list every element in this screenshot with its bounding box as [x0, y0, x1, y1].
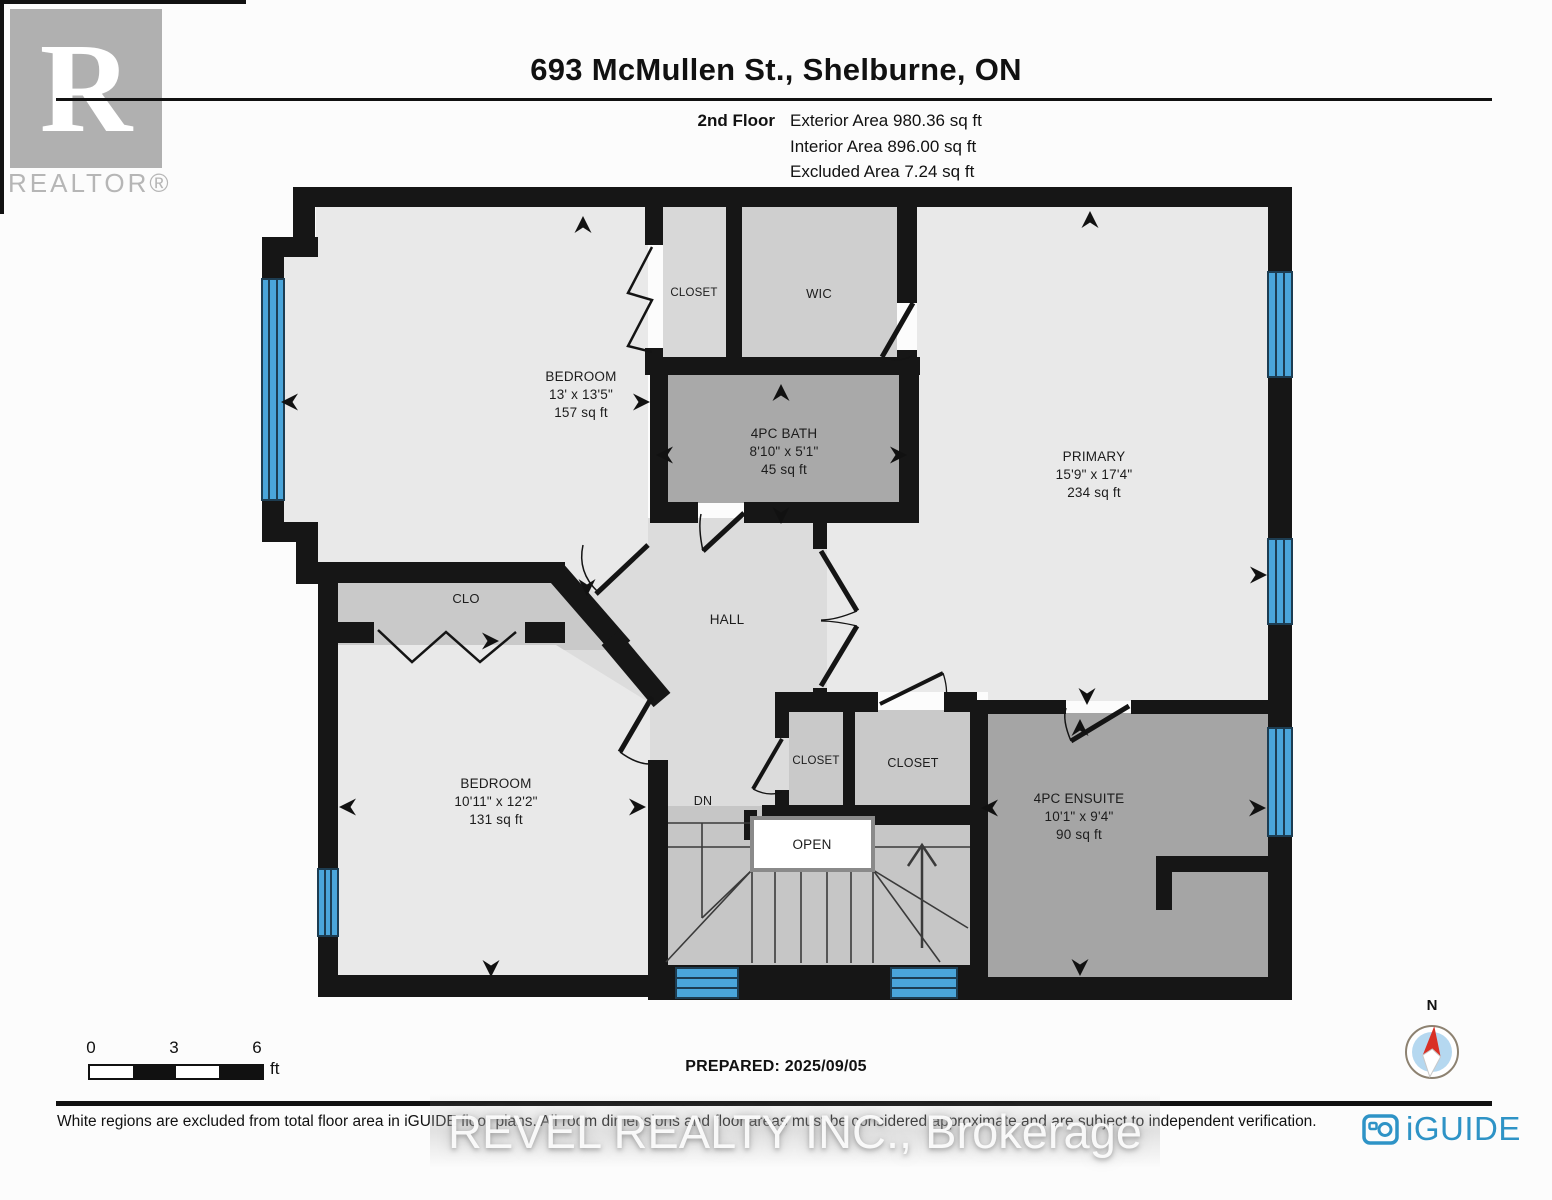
room-label-primary: PRIMARY15'9" x 17'4"234 sq ft [1056, 448, 1133, 501]
iguide-camera-icon [1362, 1112, 1400, 1146]
room-label-closet-top: CLOSET [670, 286, 717, 301]
room-label-bedroom-1: BEDROOM13' x 13'5"157 sq ft [545, 368, 616, 421]
stairs-down-label: DN [694, 793, 712, 810]
window [262, 279, 284, 500]
window [676, 968, 738, 998]
brokerage-watermark: REVEL REALTY INC., Brokerage [430, 1094, 1160, 1168]
room-label-closet-b: CLOSET [887, 755, 938, 772]
room-label-closet-a: CLOSET [792, 754, 839, 769]
floor-plan [0, 0, 1552, 1200]
room-label-wic: WIC [806, 285, 832, 302]
room-label-bath: 4PC BATH8'10" x 5'1"45 sq ft [750, 425, 819, 478]
room-label-ensuite: 4PC ENSUITE10'1" x 9'4"90 sq ft [1034, 790, 1125, 843]
window [1268, 539, 1292, 624]
scale-bar [88, 1064, 264, 1080]
prepared-date: PREPARED: 2025/09/05 [685, 1058, 867, 1076]
window [318, 869, 338, 936]
room-label-hall: HALL [710, 611, 745, 629]
room-label-bedroom-2: BEDROOM10'11" x 12'2"131 sq ft [454, 775, 537, 828]
compass-north-label: N [1427, 997, 1438, 1014]
scale-unit: ft [270, 1059, 279, 1079]
room-label-clo: CLO [452, 590, 479, 607]
compass-icon: N [1398, 994, 1468, 1086]
stairs-open-label: OPEN [792, 836, 831, 854]
window [1268, 272, 1292, 377]
iguide-brand-text: iGUIDE [1406, 1110, 1521, 1148]
window [1268, 728, 1292, 836]
window [891, 968, 957, 998]
iguide-logo: iGUIDE [1362, 1110, 1521, 1148]
floorplan-page: R REALTOR® 693 McMullen St., Shelburne, … [0, 0, 1552, 1200]
